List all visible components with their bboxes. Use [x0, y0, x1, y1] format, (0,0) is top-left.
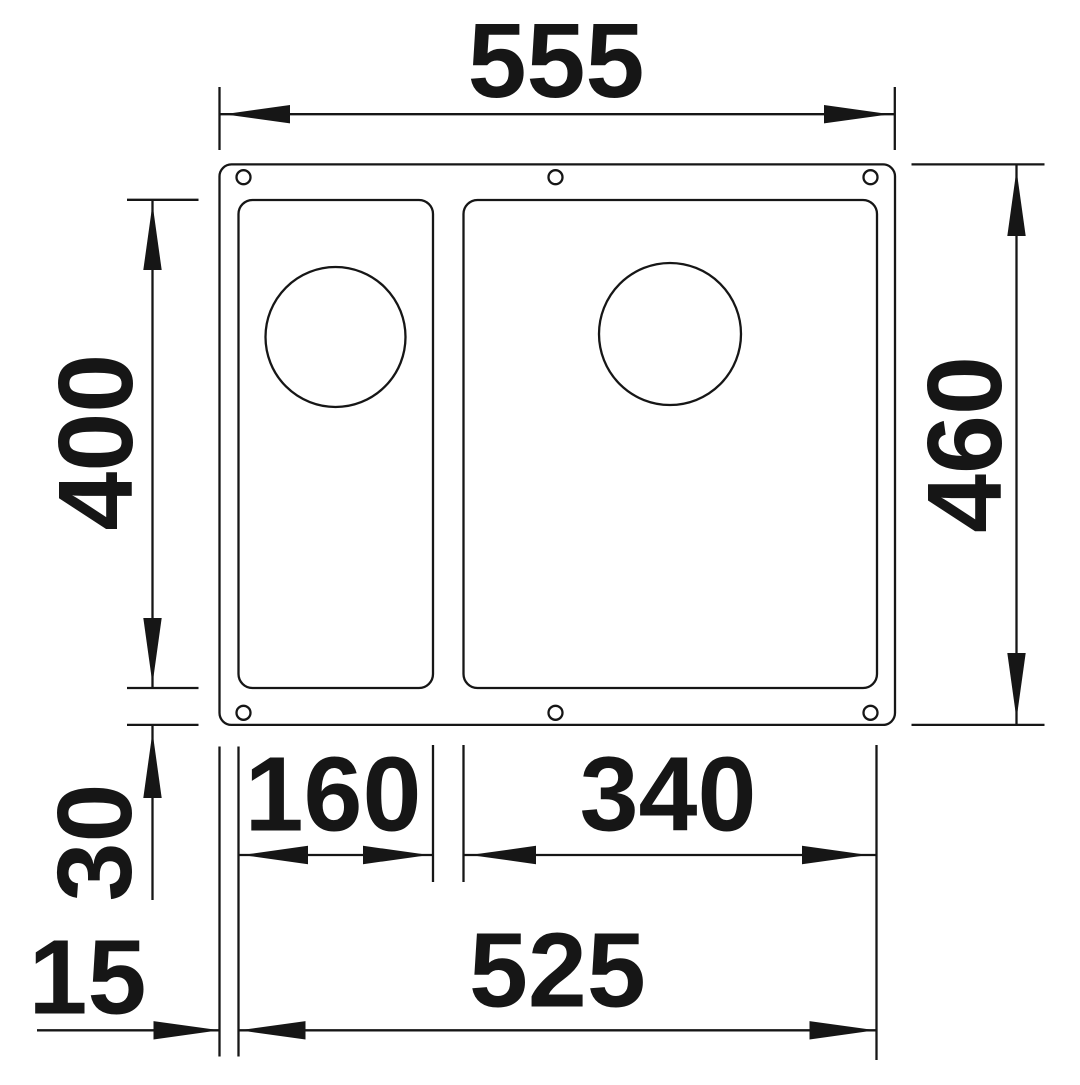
svg-text:30: 30	[36, 784, 154, 902]
svg-text:15: 15	[29, 919, 147, 1037]
svg-text:160: 160	[245, 736, 422, 854]
svg-text:400: 400	[37, 354, 155, 531]
svg-text:460: 460	[906, 356, 1024, 533]
svg-text:525: 525	[469, 912, 646, 1030]
svg-text:340: 340	[580, 736, 757, 854]
svg-text:555: 555	[468, 2, 645, 120]
